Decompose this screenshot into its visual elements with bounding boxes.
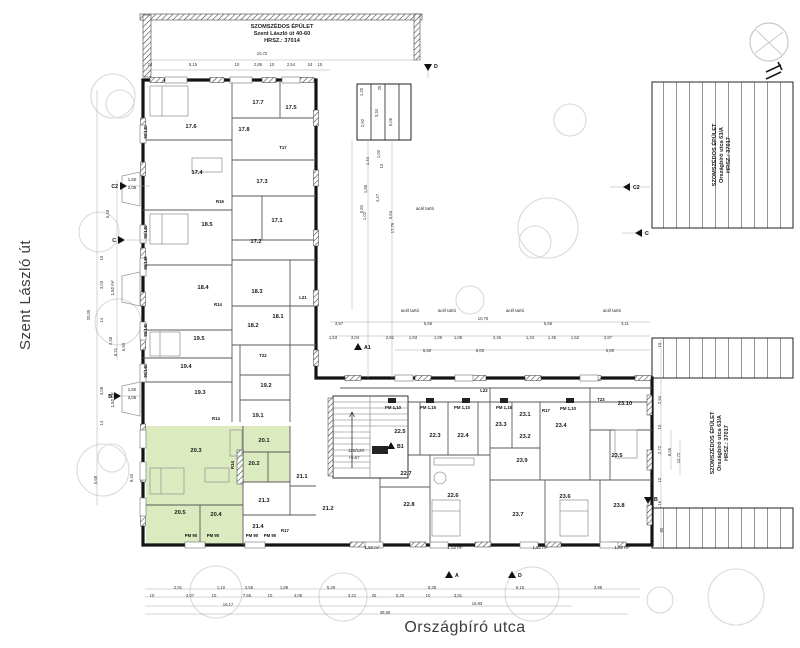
dimension-label: 38,59	[380, 610, 391, 615]
dimension-label: 1,52	[571, 335, 580, 340]
dimension-label: 5,15	[189, 62, 198, 67]
room-number: 20.2	[248, 461, 259, 467]
dimension-label: 1,10	[217, 585, 226, 590]
section-marker-arrow-icon	[508, 571, 516, 578]
annotation-label: acél tartó	[401, 308, 420, 313]
section-marker-label: C2	[633, 185, 640, 191]
room-number: 21.1	[296, 474, 308, 480]
room-number: 19.2	[260, 383, 271, 389]
room-number: 22.8	[403, 502, 415, 508]
dimension-label: 3,08	[99, 386, 104, 395]
section-marker-d: D	[508, 571, 522, 579]
street-label-left: Szent László út	[17, 240, 34, 350]
room-number: 17.2	[250, 239, 261, 245]
dimension-label: 2,48	[108, 336, 113, 345]
dimension-label: 10,72	[676, 452, 681, 463]
dimension-label: 5,84	[359, 204, 364, 213]
dimension-label: 14	[99, 420, 104, 425]
dimension-label: 25	[377, 85, 382, 90]
annotation-label: 1,52 m²	[448, 545, 463, 550]
dimension-label: 10	[212, 593, 217, 598]
section-marker-label: C	[645, 231, 649, 237]
section-marker-c2: C2	[111, 182, 127, 190]
section-marker-arrow-icon	[623, 183, 630, 191]
tag-label: 90/140	[143, 323, 148, 337]
neighbor-building-right: SZOMSZÉDOS ÉPÜLET Országbíró utca 63/A H…	[652, 82, 793, 548]
courtyard-structure	[357, 84, 411, 140]
room-number: 19.5	[193, 336, 205, 342]
dimension-label: 20,05	[86, 309, 91, 320]
dimension-label: 5,59	[423, 348, 432, 353]
section-marker-arrow-icon	[635, 229, 642, 237]
dimension-label: 10	[657, 424, 662, 429]
dimension-label: 10	[657, 477, 662, 482]
tag-label: PM 90	[185, 533, 198, 538]
room-number: 19.3	[194, 390, 206, 396]
section-marker-label: C2	[111, 184, 118, 190]
dimension-label: 25	[372, 593, 377, 598]
section-marker-arrow-icon	[120, 182, 127, 190]
section-marker-d: D	[424, 64, 438, 71]
room-number: 17.5	[285, 105, 297, 111]
section-marker-label: A1	[364, 345, 371, 351]
section-marker-label: B	[654, 497, 658, 503]
dimension-label: 15	[99, 255, 104, 260]
tag-label: 90/140	[143, 125, 148, 139]
room-number: 22.4	[457, 433, 469, 439]
dimension-label: 10,76	[478, 316, 489, 321]
neighbor-right-line1: SZOMSZÉDOS ÉPÜLET	[710, 123, 718, 186]
annotation-label: acél tartó	[438, 308, 457, 313]
room-number: 18.3	[251, 289, 263, 295]
room-number: 23.8	[613, 503, 625, 509]
tag-label: T17	[279, 145, 287, 150]
dimension-label: 5,68	[93, 475, 98, 484]
tag-label: R14	[214, 302, 222, 307]
room-number: 17.1	[271, 218, 283, 224]
dimension-label: 1,93	[409, 335, 418, 340]
dimension-label: 16,93	[472, 601, 483, 606]
tag-label: PM 1,15	[496, 405, 513, 410]
dimension-label: 5,59	[424, 321, 433, 326]
tag-label: T22	[259, 353, 267, 358]
dimension-label: 1,16	[657, 500, 662, 509]
annotation-label: +5,67	[348, 455, 360, 460]
dimension-label: 1,89	[280, 585, 289, 590]
dimension-label: 8,21	[113, 347, 118, 356]
street-label-bottom: Országbíró utca	[404, 619, 525, 636]
dimension-label: 3,97	[335, 321, 344, 326]
dimension-label: 5,80	[606, 348, 615, 353]
dimension-label: 3,04	[351, 335, 360, 340]
room-number: 18.1	[272, 314, 284, 320]
tag-label: PM 90	[264, 533, 277, 538]
room-number: 20.4	[210, 512, 222, 518]
annotation-label: acél tartó	[416, 206, 435, 211]
section-marker-b: B	[108, 392, 121, 400]
room-number: 23.2	[519, 434, 530, 440]
room-number: 23.6	[559, 494, 571, 500]
annotation-label: 125/120	[348, 448, 364, 453]
room-number: 23.4	[555, 423, 567, 429]
section-marker-arrow-icon	[445, 571, 453, 578]
room-number: 18.2	[247, 323, 258, 329]
dimension-label: 5,64	[388, 210, 393, 219]
dimension-label: 3,07	[186, 593, 195, 598]
dimension-label: 2,85	[254, 62, 263, 67]
neighbor-top-line2: Szent László út 40-60	[254, 31, 311, 37]
tag-label: R17	[542, 408, 550, 413]
dimension-label: 80	[659, 527, 664, 532]
dimension-label: 1,43	[526, 335, 535, 340]
room-number: 17.8	[238, 127, 250, 133]
neighbor-top-line3: HRSZ.: 37014	[264, 38, 301, 44]
tag-label: PM 1,10	[560, 406, 577, 411]
room-number: 22.5	[394, 429, 406, 435]
annotation-label: 2,06	[128, 395, 137, 400]
section-marker-arrow-icon	[114, 392, 121, 400]
dimension-label: 6,93	[121, 342, 126, 351]
dimension-label: 5,20	[396, 593, 405, 598]
room-number: 22.7	[400, 471, 411, 477]
room-number: 17.6	[185, 124, 197, 130]
north-symbol-icon	[750, 23, 788, 79]
section-marker-label: B1	[397, 444, 404, 450]
balconies	[122, 172, 140, 416]
dimension-label: 10,72	[257, 51, 268, 56]
dimension-label: 2,94	[657, 395, 662, 404]
dimension-label: 4,09	[294, 593, 303, 598]
annotation-label: 1,52 m²	[615, 545, 630, 550]
neighbor-top-line1: SZOMSZÉDOS ÉPÜLET	[251, 22, 314, 30]
annotation-label: acél tartó	[603, 308, 622, 313]
room-number: 23.9	[516, 458, 528, 464]
dimension-label: 1,44	[365, 156, 370, 165]
room-number: 23.3	[495, 422, 507, 428]
room-number: 17.3	[256, 179, 268, 185]
room-number: 20.5	[174, 510, 186, 516]
annotation-label: 1,52 m²	[365, 545, 380, 550]
dimension-label: 3,81	[454, 593, 463, 598]
annotation-label: 2,06	[128, 185, 137, 190]
room-number: 20.3	[190, 448, 202, 454]
tag-label: PM 1,10	[385, 405, 402, 410]
dimension-label: 2,45	[493, 335, 502, 340]
dimension-label: 10	[426, 593, 431, 598]
room-number: 21.4	[252, 524, 264, 530]
dimension-label: 15	[657, 342, 662, 347]
neighbor-right2-line2: Országbíró utca 63/A	[717, 415, 723, 471]
room-number: 17.4	[191, 170, 203, 176]
dimension-label: 1,06	[434, 335, 443, 340]
neighbor-right-line2: Országbíró utca 63/A	[719, 127, 725, 183]
annotation-label: 1,50	[128, 387, 137, 392]
dimension-label: 5,28	[327, 585, 336, 590]
room-number: 23.10	[618, 401, 633, 407]
dimension-label: 1,00	[376, 149, 381, 158]
room-number: 22.3	[429, 433, 441, 439]
section-marker-a1: A1	[354, 343, 371, 351]
annotation-label: 1,52 m²	[110, 280, 115, 295]
room-number: 23.5	[611, 453, 623, 459]
room-number: 19.1	[252, 413, 264, 419]
dimension-label: 14	[99, 317, 104, 322]
dimension-label: 15	[318, 62, 323, 67]
annotation-label: 1,50	[128, 177, 137, 182]
section-marker-label: D	[434, 64, 438, 70]
dimension-label: 2,54	[287, 62, 296, 67]
dimension-label: 10	[235, 62, 240, 67]
dimension-label: 5,58	[544, 321, 553, 326]
neighbor-right-line3: HRSZ.: 37017	[726, 137, 732, 173]
dimension-label: 3,34	[374, 108, 379, 117]
section-marker-label: D	[518, 573, 522, 579]
dimension-label: 4,11	[621, 321, 630, 326]
dimension-label: 2,92	[360, 118, 365, 127]
neighbor-building-top: SZOMSZÉDOS ÉPÜLET Szent László út 40-60 …	[140, 14, 422, 77]
dimension-label: 10	[268, 593, 273, 598]
floorplan-drawing: SZOMSZÉDOS ÉPÜLET Szent László út 40-60 …	[0, 0, 800, 648]
dimension-label: 5,00	[476, 348, 485, 353]
dimension-label: 16,17	[223, 602, 234, 607]
dimension-label: 1,02	[362, 211, 367, 220]
tag-label: PM 1,15	[420, 405, 437, 410]
neighbor-right2-line3: HRSZ.: 37017	[724, 425, 730, 461]
dimension-label: 3,03	[99, 280, 104, 289]
tag-label: 90/140	[143, 256, 148, 270]
room-number: 17.7	[252, 100, 263, 106]
dimension-label: 10	[270, 62, 275, 67]
room-number: 19.4	[180, 364, 192, 370]
tag-label: R14	[212, 416, 220, 421]
floorplan-page: SZOMSZÉDOS ÉPÜLET Szent László út 40-60 …	[0, 0, 800, 648]
dimension-label: 6,16	[516, 585, 525, 590]
dimension-label: 3,22	[348, 593, 357, 598]
room-number: 23.7	[512, 512, 523, 518]
dimension-label: 9,40	[129, 473, 134, 482]
tag-label: L21	[299, 295, 307, 300]
dimension-label: 10	[150, 593, 155, 598]
tag-label: R16	[216, 199, 224, 204]
tag-label: PM 90	[246, 533, 259, 538]
room-number: 18.5	[201, 222, 213, 228]
annotation-label: acél tartó	[506, 308, 525, 313]
dimension-label: 8,38	[428, 585, 437, 590]
section-marker-label: A	[455, 573, 459, 579]
tag-label: PM 1,10	[454, 405, 471, 410]
section-marker-arrow-icon	[424, 64, 432, 71]
dimension-label: 1,85	[363, 184, 368, 193]
tag-label: R14	[230, 460, 235, 468]
room-number: 20.1	[258, 438, 270, 444]
dimension-label: 1,45	[548, 335, 557, 340]
dimension-label: 24	[308, 62, 313, 67]
dimension-label: 5,48	[105, 209, 110, 218]
section-marker-label: B	[108, 394, 112, 400]
section-marker-label: C	[112, 238, 116, 244]
dimension-label: 1,20	[359, 87, 364, 96]
dimension-label: 5,06	[388, 117, 393, 126]
room-number: 22.6	[447, 493, 459, 499]
section-marker-c: C	[112, 236, 125, 244]
dimension-label: 2,91	[174, 585, 183, 590]
section-marker-a: A	[445, 571, 459, 579]
dimension-label: 8,06	[667, 447, 672, 456]
dimension-label: 1,53	[329, 335, 338, 340]
tag-label: R17	[281, 528, 289, 533]
dimension-label: 2,56	[245, 585, 254, 590]
neighbor-right2-line1: SZOMSZÉDOS ÉPÜLET	[708, 411, 716, 474]
section-marker-arrow-icon	[118, 236, 125, 244]
tag-label: 90/140	[143, 225, 148, 239]
annotation-label: 1,52 m²	[533, 545, 548, 550]
room-number: 23.1	[519, 412, 531, 418]
tag-label: 90/140	[143, 364, 148, 378]
tag-label: T23	[597, 397, 605, 402]
room-number: 21.3	[258, 498, 270, 504]
dimension-label: 2,61	[386, 335, 395, 340]
dimension-label: 4,47	[375, 193, 380, 202]
room-number: 21.2	[322, 506, 333, 512]
dimension-label: 10	[379, 163, 384, 168]
dimension-label: 1,09	[454, 335, 463, 340]
dimension-label: 3,98	[594, 585, 603, 590]
section-marker-c: C	[635, 229, 649, 237]
dimension-label: 2,72	[657, 445, 662, 454]
dimension-label: 2,87	[604, 335, 613, 340]
tag-label: PM 90	[207, 533, 220, 538]
dimension-label: 7,65	[243, 593, 252, 598]
dimension-label: 24	[148, 62, 153, 67]
tag-label: L22	[480, 388, 488, 393]
room-number: 18.4	[197, 285, 209, 291]
section-marker-arrow-icon	[354, 343, 362, 350]
dimension-label: 17,76	[390, 222, 395, 233]
